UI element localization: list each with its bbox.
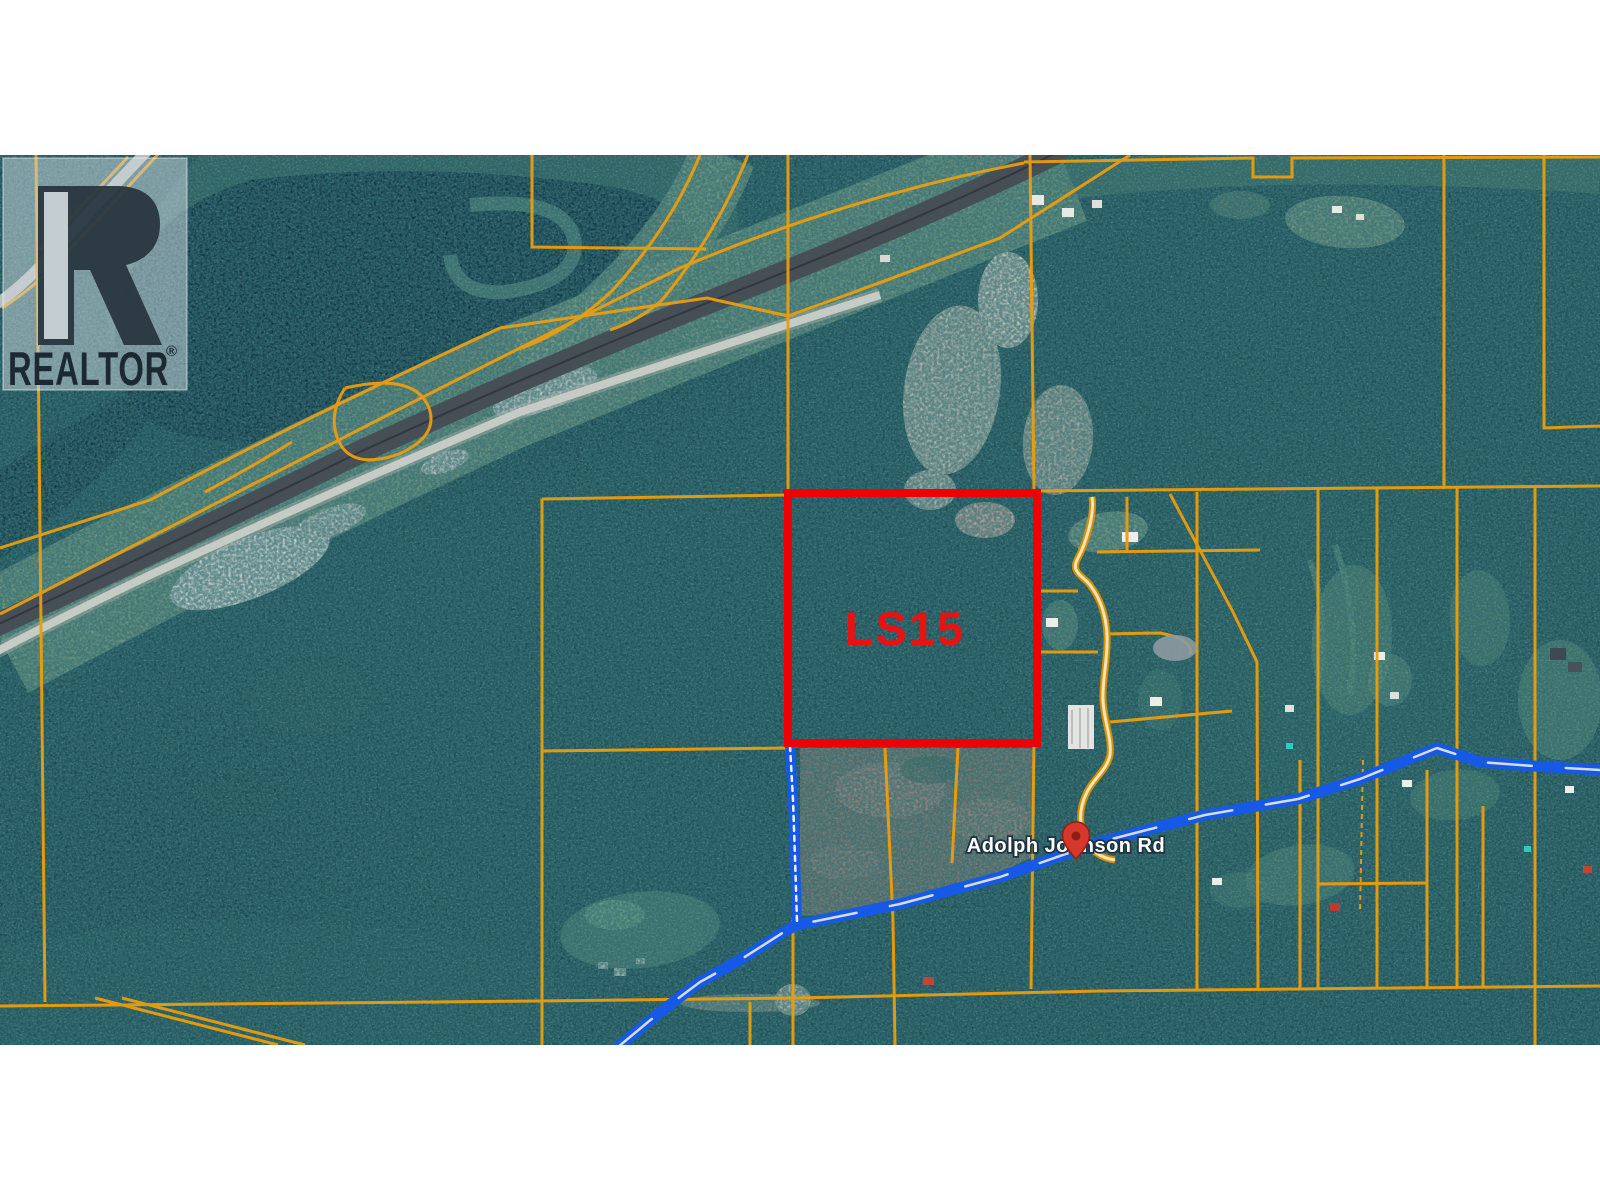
realtor-brand-text-group: REALTOR [8,342,169,395]
letterbox-top [0,0,1600,155]
realtor-brand-text: REALTOR [8,342,169,395]
teal-roof-building [1286,743,1293,749]
registered-trademark: ® [166,343,177,360]
listing-photo-viewer: LS15 Adolph Johnson Rd REALTOR ® [0,0,1600,1200]
parcel-line [1097,550,1260,552]
teal-roof-building [1524,846,1531,852]
red-roof-building [923,977,934,985]
parcel-id-label: LS15 [845,602,965,655]
satellite-parcel-map: LS15 Adolph Johnson Rd REALTOR ® [0,0,1600,1200]
red-roof-building [1330,903,1340,911]
red-roof-building [1583,866,1592,873]
parcel-line [1318,883,1427,884]
pond [1153,635,1197,661]
realtor-watermark: REALTOR ® [3,158,187,395]
letterbox-bottom [0,1045,1600,1200]
satellite-imagery: LS15 Adolph Johnson Rd REALTOR ® [0,100,1600,1120]
